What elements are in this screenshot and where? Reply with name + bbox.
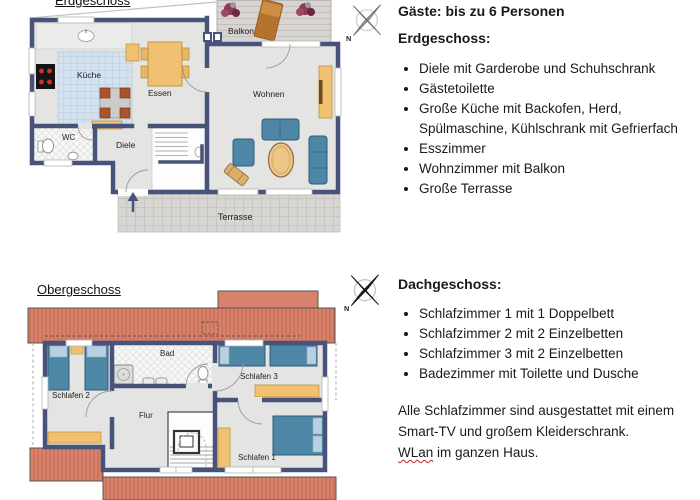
- chimney-mark: [214, 33, 221, 41]
- ground-floor-plan: Balkon Terrasse: [0, 0, 345, 238]
- toilet-icon: [198, 367, 208, 385]
- ground-floor-plan-title: Erdgeschoss: [55, 0, 130, 8]
- dining-table-icon: [141, 42, 189, 86]
- compass-rose-icon: N: [343, 272, 385, 312]
- wardrobe-icon: [48, 432, 101, 443]
- wardrobe-icon: [218, 428, 230, 468]
- wc-area: WC: [34, 128, 93, 161]
- room-label-wc: WC: [62, 133, 76, 142]
- upper-floor-plan: Schlafen 2 Bad: [0, 285, 345, 500]
- single-bed-icon: [85, 345, 108, 390]
- room-label-balkon: Balkon: [228, 26, 254, 36]
- coffee-table-icon: [269, 143, 294, 177]
- armchair-icon: [233, 139, 254, 166]
- list-item: Wohnzimmer mit Balkon: [419, 159, 700, 179]
- room-label-kueche: Küche: [77, 70, 101, 80]
- upper-floor-heading: Dachgeschoss:: [398, 276, 501, 292]
- ground-floor-heading: Erdgeschoss:: [398, 30, 491, 46]
- chimney-mark: [204, 33, 211, 41]
- note-line: Alle Schlafzimmer sind ausgestattet mit …: [398, 403, 674, 418]
- toilet-icon: [38, 139, 54, 153]
- kitchen-table-icon: [100, 88, 130, 118]
- list-item: Große Küche mit Backofen, Herd, Spülmasc…: [419, 99, 700, 139]
- sofa-icon: [262, 119, 299, 140]
- shower-icon: [114, 365, 133, 384]
- stove-icon: [36, 64, 55, 89]
- single-bed-icon: [270, 345, 317, 366]
- ground-floor-feature-list: Diele mit Garderobe und Schuhschrank Gäs…: [398, 59, 700, 199]
- dormer: [218, 291, 318, 308]
- upper-floor-plan-title: Obergeschoss: [37, 282, 121, 297]
- room-label-essen: Essen: [148, 88, 172, 98]
- list-item: Diele mit Garderobe und Schuhschrank: [419, 59, 700, 79]
- guests-heading: Gäste: bis zu 6 Personen: [398, 3, 565, 19]
- room-label-bad: Bad: [160, 349, 174, 358]
- info-panel: Gäste: bis zu 6 Personen Erdgeschoss: Di…: [398, 0, 698, 500]
- amenities-note: Alle Schlafzimmer sind ausgestattet mit …: [398, 400, 698, 463]
- list-item: Große Terrasse: [419, 179, 700, 199]
- list-item: Schlafzimmer 2 mit 2 Einzelbetten: [419, 324, 700, 344]
- room-label-wohnen: Wohnen: [253, 89, 285, 99]
- room-label-flur: Flur: [139, 411, 153, 420]
- room-label-schlafen1: Schlafen 1: [238, 453, 276, 462]
- list-item: Esszimmer: [419, 139, 700, 159]
- single-bed-icon: [48, 345, 69, 390]
- list-item: Schlafzimmer 3 mit 2 Einzelbetten: [419, 344, 700, 364]
- wardrobe-icon: [255, 385, 319, 397]
- roof-top: [28, 308, 335, 343]
- balcony-area: Balkon: [217, 0, 331, 43]
- compass-rose-icon: N: [345, 2, 387, 42]
- north-label: N: [344, 304, 349, 312]
- room-label-schlafen2: Schlafen 2: [52, 391, 90, 400]
- wlan-word-misspelled: WLan: [398, 445, 433, 460]
- apartment-flyer-page: Balkon Terrasse: [0, 0, 700, 500]
- staircase: [168, 412, 215, 468]
- upper-floor-feature-list: Schlafzimmer 1 mit 1 Doppelbett Schlafzi…: [398, 304, 700, 384]
- sink-icon: [68, 152, 78, 160]
- sofa-icon: [309, 136, 327, 184]
- roof-bottom: [103, 477, 336, 500]
- note-line: im ganzen Haus.: [433, 445, 538, 460]
- staircase: [152, 128, 205, 190]
- room-label-schlafen3: Schlafen 3: [240, 372, 278, 381]
- terrace-area: Terrasse: [118, 194, 340, 232]
- tv-board-icon: [319, 66, 332, 118]
- room-label-terrasse: Terrasse: [218, 212, 253, 222]
- roof-bottom-left: [30, 448, 103, 481]
- north-label: N: [346, 34, 351, 42]
- single-bed-icon: [219, 345, 265, 366]
- list-item: Badezimmer mit Toilette und Dusche: [419, 364, 700, 384]
- room-label-diele: Diele: [116, 140, 136, 150]
- note-line: Smart-TV und großem Kleiderschrank.: [398, 424, 629, 439]
- double-bed-icon: [273, 416, 323, 455]
- sideboard-icon: [126, 44, 139, 61]
- list-item: Gästetoilette: [419, 79, 700, 99]
- list-item: Schlafzimmer 1 mit 1 Doppelbett: [419, 304, 700, 324]
